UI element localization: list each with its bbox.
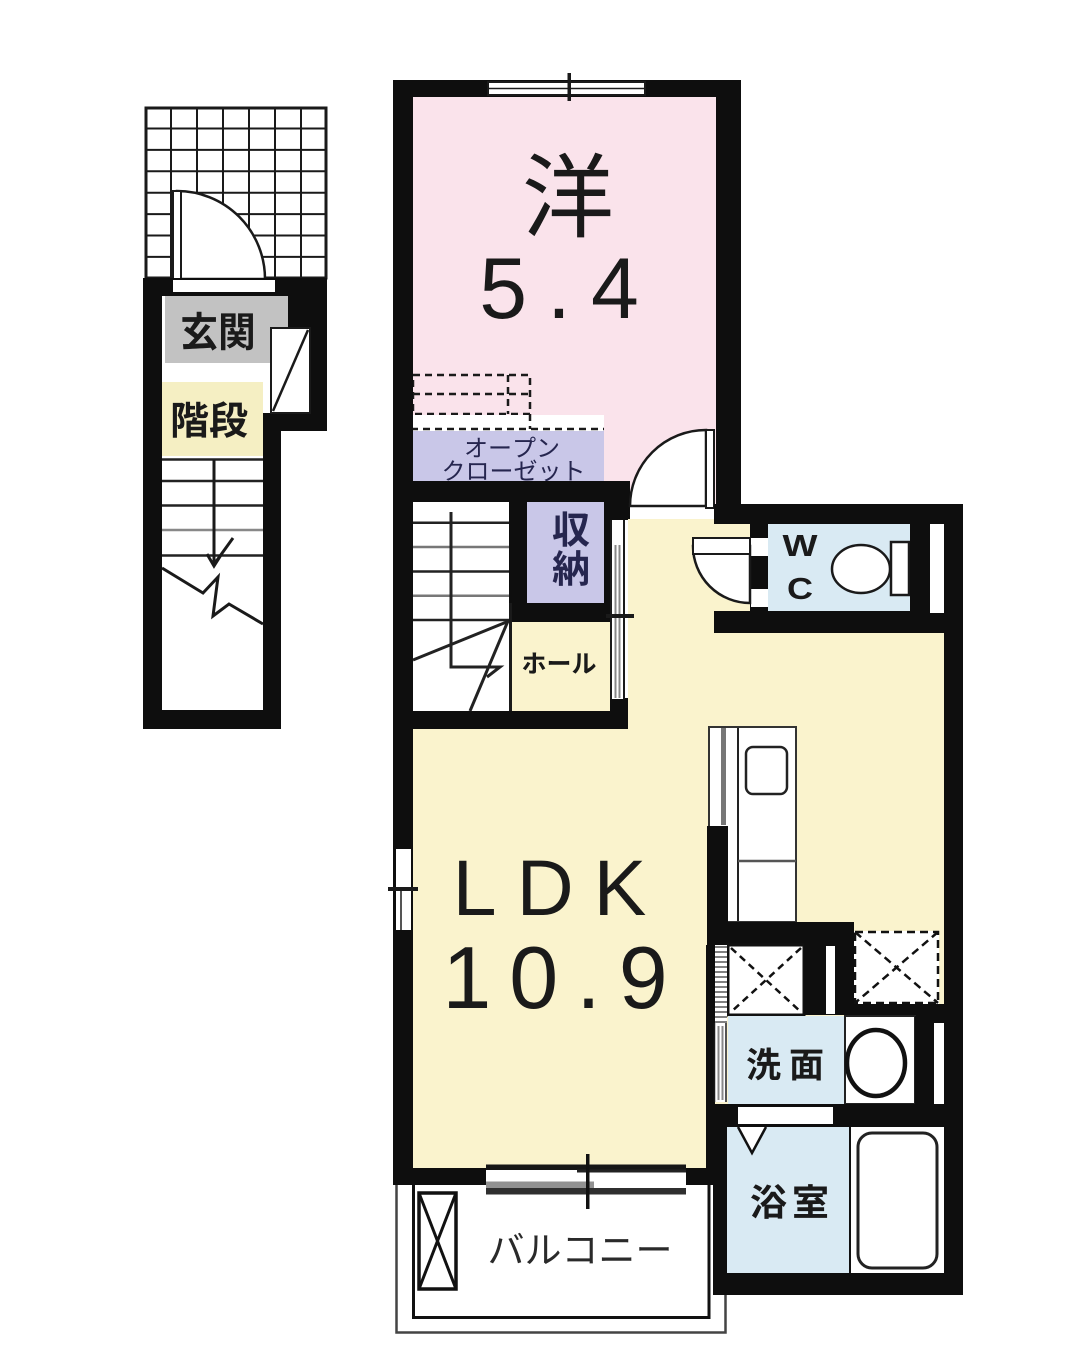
svg-text:5.4: 5.4 [479, 241, 659, 337]
svg-text:LDK: LDK [453, 843, 667, 932]
svg-text:C: C [787, 571, 813, 606]
svg-text:W: W [783, 528, 819, 563]
svg-text:10.9: 10.9 [442, 928, 685, 1027]
